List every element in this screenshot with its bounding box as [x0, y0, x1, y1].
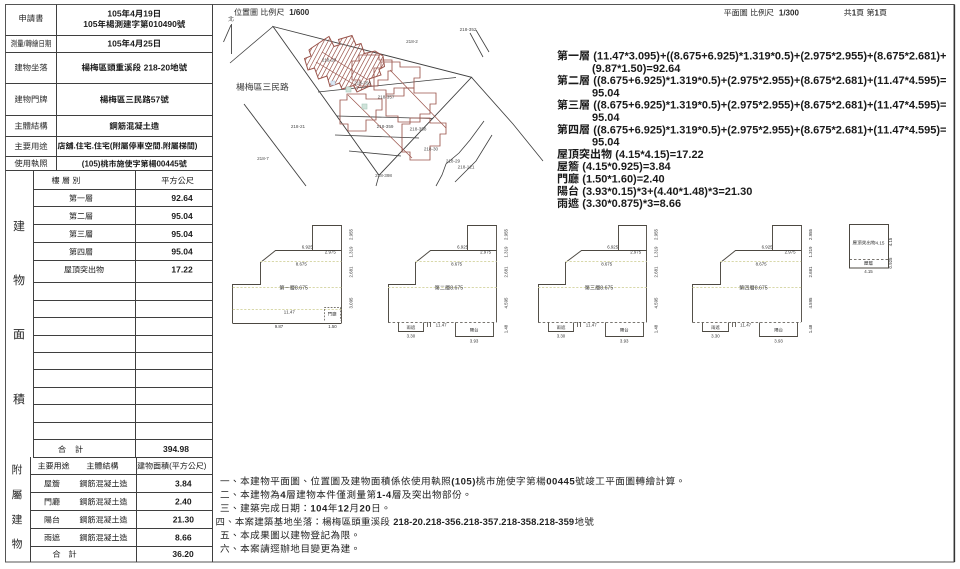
svg-text:218-30: 218-30 [424, 147, 439, 152]
svg-text:(3.93*0.15)*3+(4.40*1.48)*3=21: (3.93*0.15)*3+(4.40*1.48)*3=21.30 [582, 186, 752, 198]
svg-text:(1.50*1.60)=2.40: (1.50*1.60)=2.40 [582, 174, 664, 186]
svg-text:17.22: 17.22 [171, 265, 193, 275]
svg-text:105: 105 [83, 19, 97, 29]
svg-text:8.675: 8.675 [295, 286, 308, 292]
svg-text:3.30: 3.30 [557, 333, 566, 338]
svg-text:218-7: 218-7 [257, 156, 269, 161]
svg-text:((8.675+6.925)*1.319*0.5)+(2.9: ((8.675+6.925)*1.319*0.5)+(2.975*2.955)+… [593, 100, 946, 112]
svg-text:95.04: 95.04 [171, 229, 193, 239]
svg-text:218-2: 218-2 [406, 39, 418, 44]
svg-text:6.925: 6.925 [762, 244, 774, 249]
svg-text:218-357: 218-357 [378, 95, 395, 100]
svg-text:36.20: 36.20 [172, 549, 194, 559]
svg-text:3.30: 3.30 [711, 333, 720, 338]
svg-text:6.925: 6.925 [302, 244, 314, 249]
svg-text:11.47: 11.47 [284, 310, 296, 315]
svg-text:4: 4 [130, 9, 135, 19]
svg-text:218-21: 218-21 [291, 124, 306, 129]
svg-text:92.64: 92.64 [171, 193, 193, 203]
svg-text:00445: 00445 [157, 160, 180, 169]
svg-text:3.095: 3.095 [348, 297, 353, 309]
svg-text:95.04: 95.04 [171, 211, 193, 221]
svg-text:1.48: 1.48 [504, 324, 509, 333]
svg-text:1: 1 [852, 9, 857, 18]
svg-text:6.925: 6.925 [607, 244, 619, 249]
svg-text:2.681: 2.681 [348, 266, 353, 278]
svg-text:218-20: 218-20 [144, 63, 171, 73]
svg-text:2.975: 2.975 [785, 250, 797, 255]
svg-text:): ) [195, 142, 198, 151]
svg-text:11.47: 11.47 [740, 322, 752, 327]
svg-text:218-359: 218-359 [377, 124, 394, 129]
svg-text:218-20: 218-20 [322, 58, 337, 63]
svg-text:1.319: 1.319 [808, 246, 813, 258]
svg-text:8.675: 8.675 [601, 261, 613, 266]
svg-text:(3.30*0.875)*3=8.66: (3.30*0.875)*3=8.66 [582, 198, 681, 210]
svg-text:4.15: 4.15 [888, 237, 893, 246]
svg-text:2.975: 2.975 [480, 250, 492, 255]
svg-text:((8.675+6.925)*1.319*0.5)+(2.9: ((8.675+6.925)*1.319*0.5)+(2.975*2.955)+… [593, 75, 946, 87]
svg-text:19: 19 [143, 9, 153, 19]
svg-text:4.595: 4.595 [504, 297, 509, 309]
svg-text:.: . [161, 142, 163, 151]
svg-text:218-358: 218-358 [410, 127, 427, 132]
svg-text:95.04: 95.04 [592, 137, 620, 149]
svg-text:9.87: 9.87 [275, 324, 284, 329]
svg-text:/: / [24, 39, 27, 49]
svg-text:2.40: 2.40 [175, 497, 192, 507]
svg-text:11.47: 11.47 [586, 322, 598, 327]
svg-text:3.93: 3.93 [470, 339, 479, 344]
svg-text:8.675: 8.675 [451, 261, 463, 266]
svg-text:218-352: 218-352 [460, 27, 477, 32]
svg-text:0.925: 0.925 [888, 257, 893, 269]
svg-text:6.925: 6.925 [457, 244, 469, 249]
svg-text:218-356: 218-356 [354, 81, 371, 86]
svg-text:3.93: 3.93 [774, 339, 783, 344]
svg-text:105: 105 [107, 38, 121, 48]
svg-text:.: . [74, 142, 76, 151]
svg-text:218-398: 218-398 [375, 173, 392, 178]
svg-text:57: 57 [151, 95, 161, 105]
svg-text:2.955: 2.955 [654, 228, 659, 240]
svg-text:(11.47*3.095)+((8.675+6.925)*1: (11.47*3.095)+((8.675+6.925)*1.319*0.5)+… [593, 51, 946, 63]
svg-text:105: 105 [107, 9, 121, 19]
svg-text:21.30: 21.30 [173, 515, 195, 525]
svg-text:4: 4 [130, 38, 135, 48]
svg-text:4.15: 4.15 [876, 240, 885, 245]
svg-text:8.675: 8.675 [450, 286, 463, 292]
svg-text:8.675: 8.675 [296, 261, 308, 266]
svg-text:2.975: 2.975 [630, 250, 642, 255]
svg-text:2.681: 2.681 [504, 266, 509, 278]
svg-text:((8.675+6.925)*1.319*0.5)+(2.9: ((8.675+6.925)*1.319*0.5)+(2.975*2.955)+… [593, 124, 946, 136]
svg-text:8.675: 8.675 [756, 261, 768, 266]
svg-text:1.319: 1.319 [654, 246, 659, 258]
svg-text:3.84: 3.84 [175, 479, 192, 489]
svg-text:2.975: 2.975 [325, 250, 337, 255]
svg-text:8.675: 8.675 [755, 286, 768, 292]
svg-text:8.66: 8.66 [175, 533, 192, 543]
svg-text:2.955: 2.955 [808, 228, 813, 240]
svg-text:218-121: 218-121 [458, 165, 475, 170]
svg-text:1: 1 [875, 9, 880, 18]
svg-text:95.04: 95.04 [592, 87, 620, 99]
svg-text:00445: 00445 [546, 477, 575, 488]
svg-text:2.681: 2.681 [808, 266, 813, 278]
svg-text:(4.15*0.925)=3.84: (4.15*0.925)=3.84 [582, 161, 671, 173]
svg-text:1.319: 1.319 [348, 246, 353, 258]
svg-text:4.595: 4.595 [808, 297, 813, 309]
svg-text:95.04: 95.04 [171, 247, 193, 257]
svg-text:2.681: 2.681 [654, 266, 659, 278]
svg-text:8.675: 8.675 [600, 286, 613, 292]
svg-text:4.595: 4.595 [654, 297, 659, 309]
svg-text:1.50: 1.50 [328, 324, 337, 329]
svg-text:95.04: 95.04 [592, 112, 620, 124]
svg-text:218-20.218-356.218-357.218-358: 218-20.218-356.218-357.218-358.218-359 [393, 516, 574, 527]
svg-text:1/600: 1/600 [289, 8, 310, 17]
svg-text:25: 25 [143, 38, 153, 48]
svg-text:.: . [92, 142, 94, 151]
svg-text:): ) [204, 462, 207, 471]
svg-text:20: 20 [360, 504, 372, 515]
svg-text:3.30: 3.30 [407, 333, 416, 338]
svg-text:2.955: 2.955 [504, 228, 509, 240]
svg-text:(9.87*1.50)=92.64: (9.87*1.50)=92.64 [592, 63, 681, 75]
svg-text:2.955: 2.955 [348, 228, 353, 240]
svg-text:(4.15*4.15)=17.22: (4.15*4.15)=17.22 [615, 149, 703, 161]
svg-text:1.48: 1.48 [808, 324, 813, 333]
svg-text:(: ( [169, 462, 172, 471]
svg-text:1-4: 1-4 [377, 490, 392, 501]
svg-text:010490: 010490 [149, 19, 178, 29]
svg-text:4: 4 [280, 490, 286, 501]
svg-text:12: 12 [338, 504, 350, 515]
svg-text:104: 104 [310, 504, 328, 515]
svg-text:1.319: 1.319 [504, 246, 509, 258]
svg-text:11.47: 11.47 [436, 322, 448, 327]
svg-text:(: ( [110, 142, 113, 151]
svg-text:(105): (105) [451, 477, 476, 488]
svg-text:1.48: 1.48 [654, 324, 659, 333]
svg-text:3.93: 3.93 [620, 339, 629, 344]
svg-text:1/300: 1/300 [779, 9, 800, 18]
svg-text:394.98: 394.98 [163, 444, 189, 454]
svg-text:4.15: 4.15 [864, 269, 873, 274]
svg-text:(105): (105) [82, 160, 101, 169]
svg-text:218-29: 218-29 [446, 159, 461, 164]
